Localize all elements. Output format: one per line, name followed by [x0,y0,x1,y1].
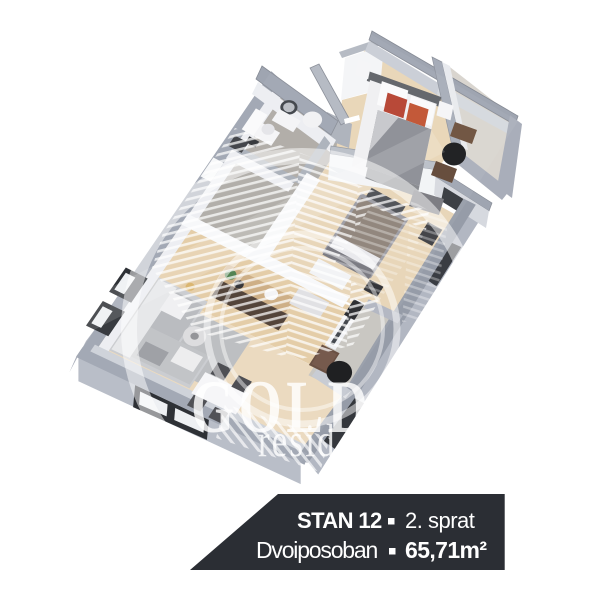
svg-text:STAN 12: STAN 12 [297,508,382,533]
svg-text:65,71m²: 65,71m² [405,537,487,563]
svg-text:Dvoiposoban: Dvoiposoban [256,537,377,563]
svg-text:resid: resid [258,414,337,466]
svg-text:2. sprat: 2. sprat [405,508,475,533]
